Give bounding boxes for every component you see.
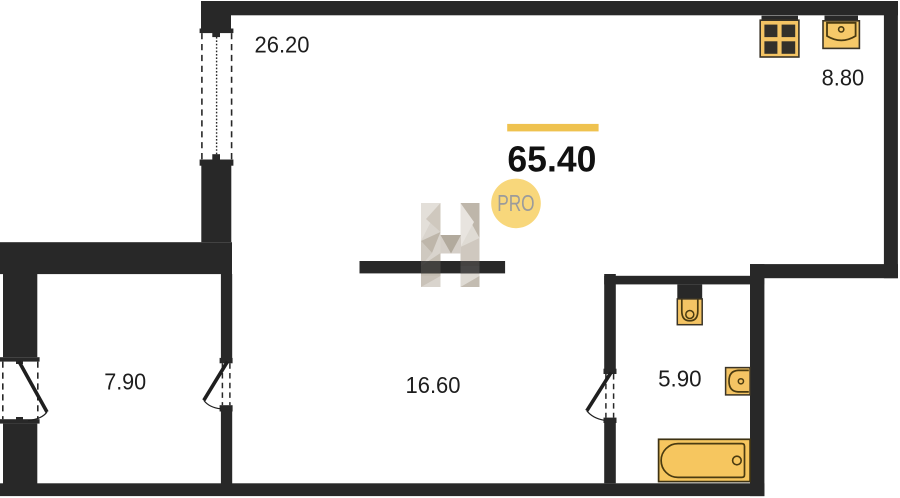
svg-text:7.90: 7.90 <box>104 368 146 394</box>
svg-text:26.20: 26.20 <box>255 32 310 58</box>
svg-text:PRO: PRO <box>497 190 534 216</box>
svg-text:8.80: 8.80 <box>822 65 865 91</box>
svg-text:16.60: 16.60 <box>406 372 461 398</box>
svg-text:65.40: 65.40 <box>507 139 596 180</box>
svg-text:5.90: 5.90 <box>658 365 702 391</box>
